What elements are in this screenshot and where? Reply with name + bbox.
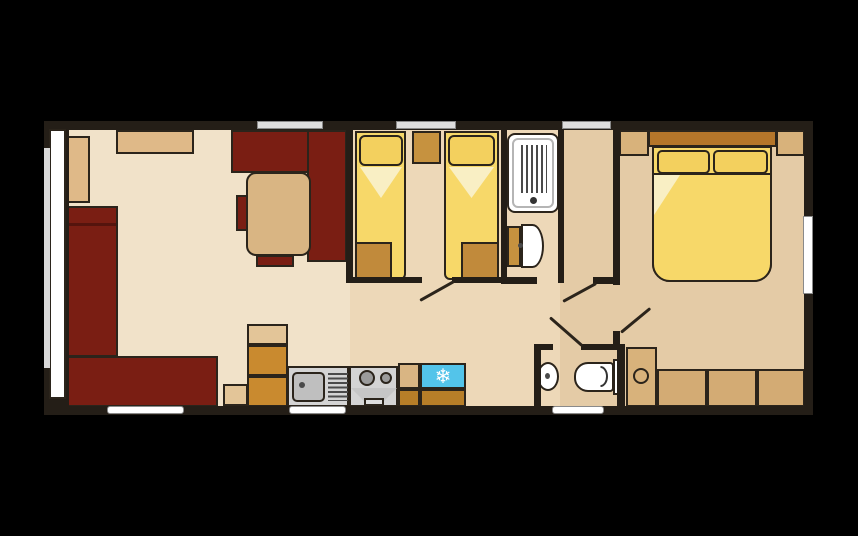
wardrobe-right xyxy=(776,130,805,156)
wc-basin-dot xyxy=(545,373,550,379)
sofa-bottom-section xyxy=(61,356,218,407)
wall-shower-bottom xyxy=(501,277,537,284)
wall-shower-hall xyxy=(558,129,564,283)
cooker-burner-large xyxy=(359,370,375,386)
wall-wc-top-left xyxy=(534,344,553,350)
window-bottom-wc xyxy=(552,406,604,414)
bedside-cabinet xyxy=(412,131,441,164)
sink-bowl xyxy=(292,372,325,402)
sink-faucet-dot xyxy=(299,382,305,388)
bedroom-drawer-3 xyxy=(757,369,805,407)
window-top-lounge xyxy=(257,121,323,129)
vanity-cabinet-knob xyxy=(633,368,649,384)
cooker-burner-small xyxy=(380,372,392,384)
kitchen-tall-unit-bottom xyxy=(247,376,288,407)
lounge-seat-cushion-top xyxy=(116,130,194,154)
wall-wc-left xyxy=(534,344,541,407)
shower-drain-dot xyxy=(530,197,537,204)
wall-lounge-twin xyxy=(346,129,353,283)
floor-plan: ❄ xyxy=(0,0,858,536)
worktop-under-cabinet xyxy=(398,389,420,407)
fridge-under-cabinet xyxy=(420,389,466,407)
dining-bench-right xyxy=(307,130,347,262)
sink-drainer-lines xyxy=(328,373,348,401)
front-door-outer-rail xyxy=(44,148,50,368)
bedroom-drawer-1 xyxy=(657,369,707,407)
bedroom-drawer-2 xyxy=(707,369,757,407)
kitchen-tall-unit-top xyxy=(247,324,288,345)
twin-bed-left-pillow xyxy=(359,135,403,166)
wall-twin-bottom-right xyxy=(452,277,507,283)
lounge-seat-cushion-left xyxy=(66,136,90,203)
window-top-twin xyxy=(396,121,456,129)
side-table-block xyxy=(223,384,248,406)
dining-chair-left xyxy=(236,195,248,231)
double-bed-headboard xyxy=(648,130,777,147)
twin-bed-left-foot-locker xyxy=(355,242,392,280)
window-bottom-kitchen xyxy=(289,406,346,414)
wardrobe-left xyxy=(619,130,649,156)
twin-bed-right-foot-locker xyxy=(461,242,499,280)
window-bottom-lounge xyxy=(107,406,184,414)
kitchen-tall-unit-mid xyxy=(247,345,288,376)
sofa-left-section xyxy=(66,206,118,357)
wall-twin-shower xyxy=(501,129,507,283)
dining-table xyxy=(246,172,311,256)
twin-bed-right-pillow xyxy=(448,135,495,166)
wall-bedroom-door-stub xyxy=(593,277,620,284)
window-right-bedroom xyxy=(803,216,813,294)
double-bed-pillow-left xyxy=(657,150,710,174)
wall-wc-right xyxy=(617,344,625,407)
wall-bedroom-left-upper xyxy=(613,129,620,285)
fridge: ❄ xyxy=(420,363,466,389)
dining-chair-bottom xyxy=(256,255,294,267)
worktop-piece xyxy=(398,363,420,389)
wc-toilet-bowl xyxy=(574,362,614,392)
wall-twin-bottom-left xyxy=(346,277,422,283)
window-top-hall xyxy=(562,121,611,129)
oven-door xyxy=(364,398,384,406)
sofa-left-armrest-line xyxy=(68,223,116,226)
front-door-glazing xyxy=(49,129,66,399)
shower-drain-lines xyxy=(521,145,547,193)
shower-wc-dot xyxy=(518,243,523,248)
double-bed-pillow-right xyxy=(713,150,768,174)
shower-wc-bowl xyxy=(521,224,544,268)
